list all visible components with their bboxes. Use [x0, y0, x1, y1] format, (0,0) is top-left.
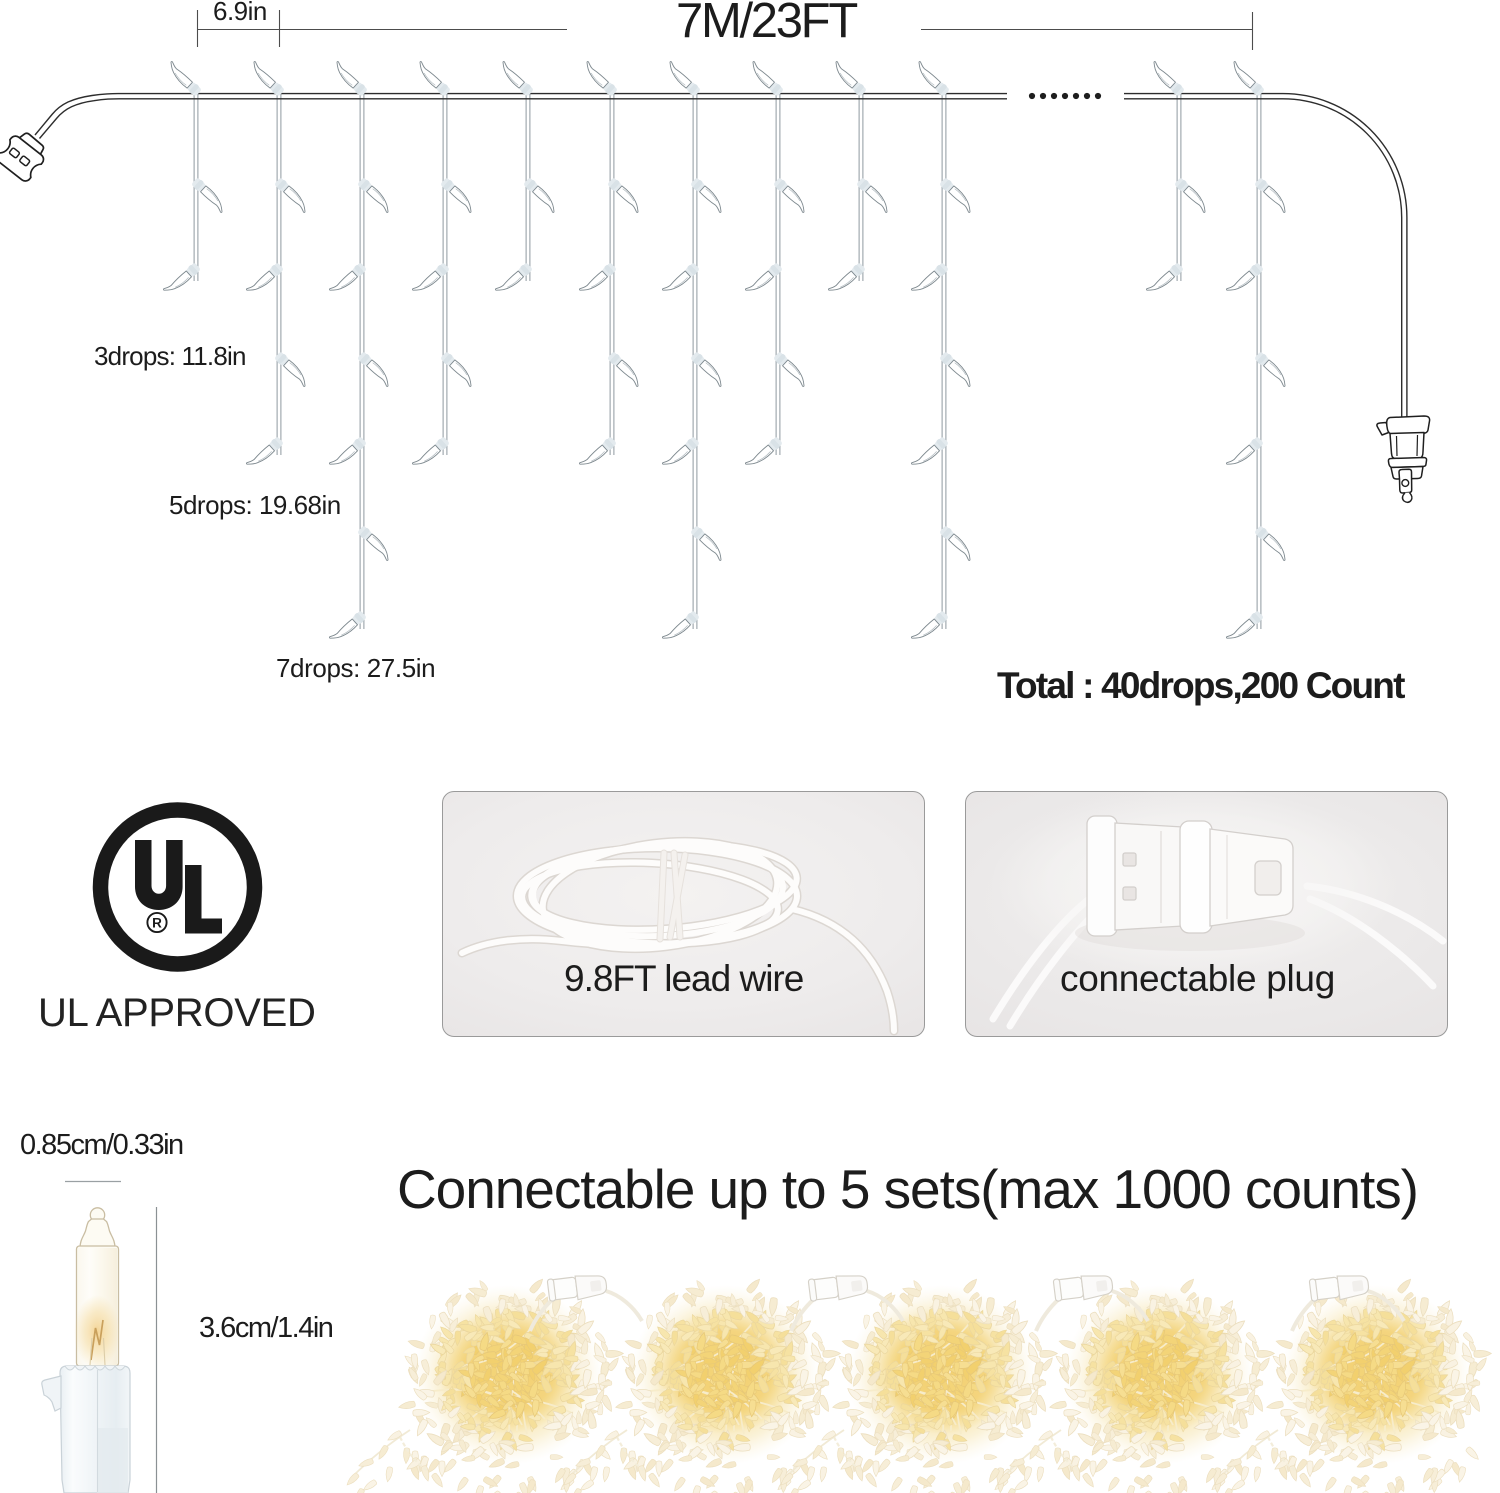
svg-text:R: R — [152, 915, 162, 930]
